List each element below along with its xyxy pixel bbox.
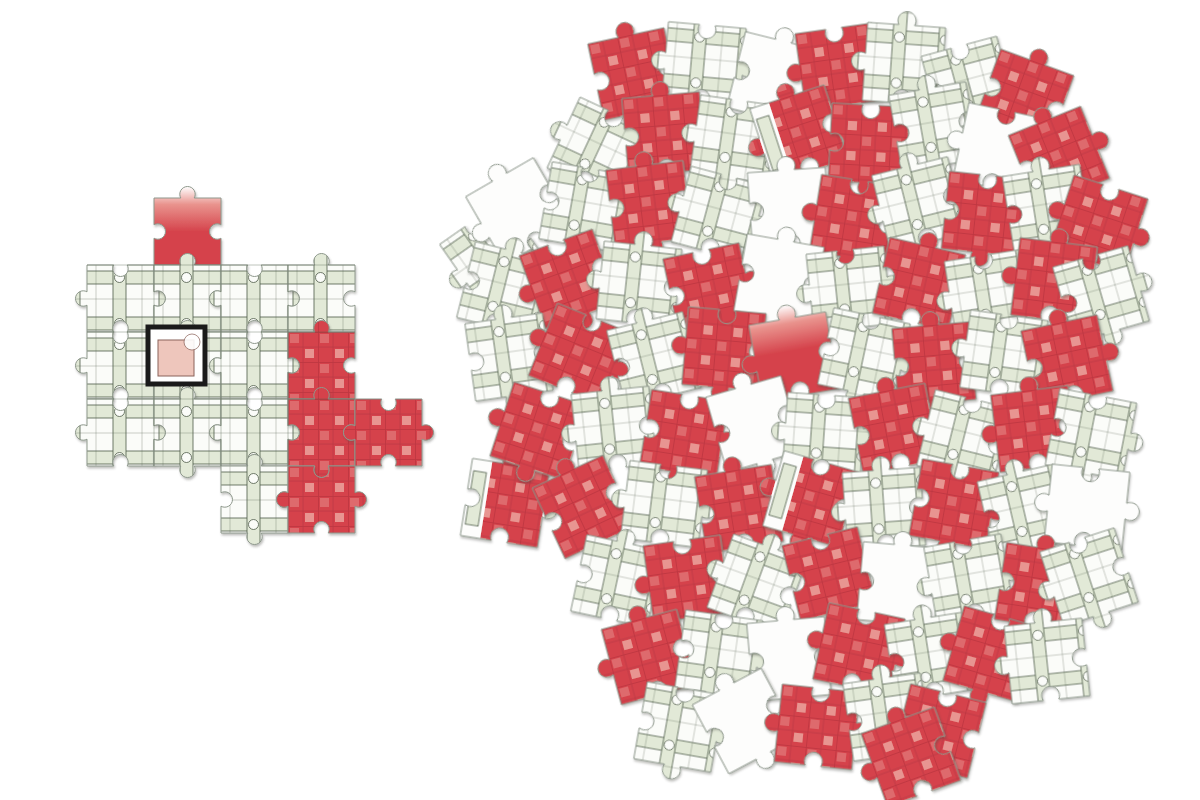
assembled-puzzle-piece[interactable] [344, 399, 434, 466]
puzzle-scene [0, 0, 1200, 800]
assembled-puzzle-section [76, 187, 434, 545]
puzzle-illustration [0, 0, 1200, 800]
courtyard-marker [148, 327, 205, 384]
assembled-puzzle-piece[interactable] [76, 265, 166, 332]
assembled-puzzle-piece[interactable] [76, 399, 166, 466]
courtyard-notch-circle [184, 334, 200, 350]
assembled-puzzle-piece[interactable] [210, 332, 300, 399]
assembled-puzzle-piece[interactable] [210, 265, 300, 332]
puzzle-piece-pile [429, 8, 1166, 800]
